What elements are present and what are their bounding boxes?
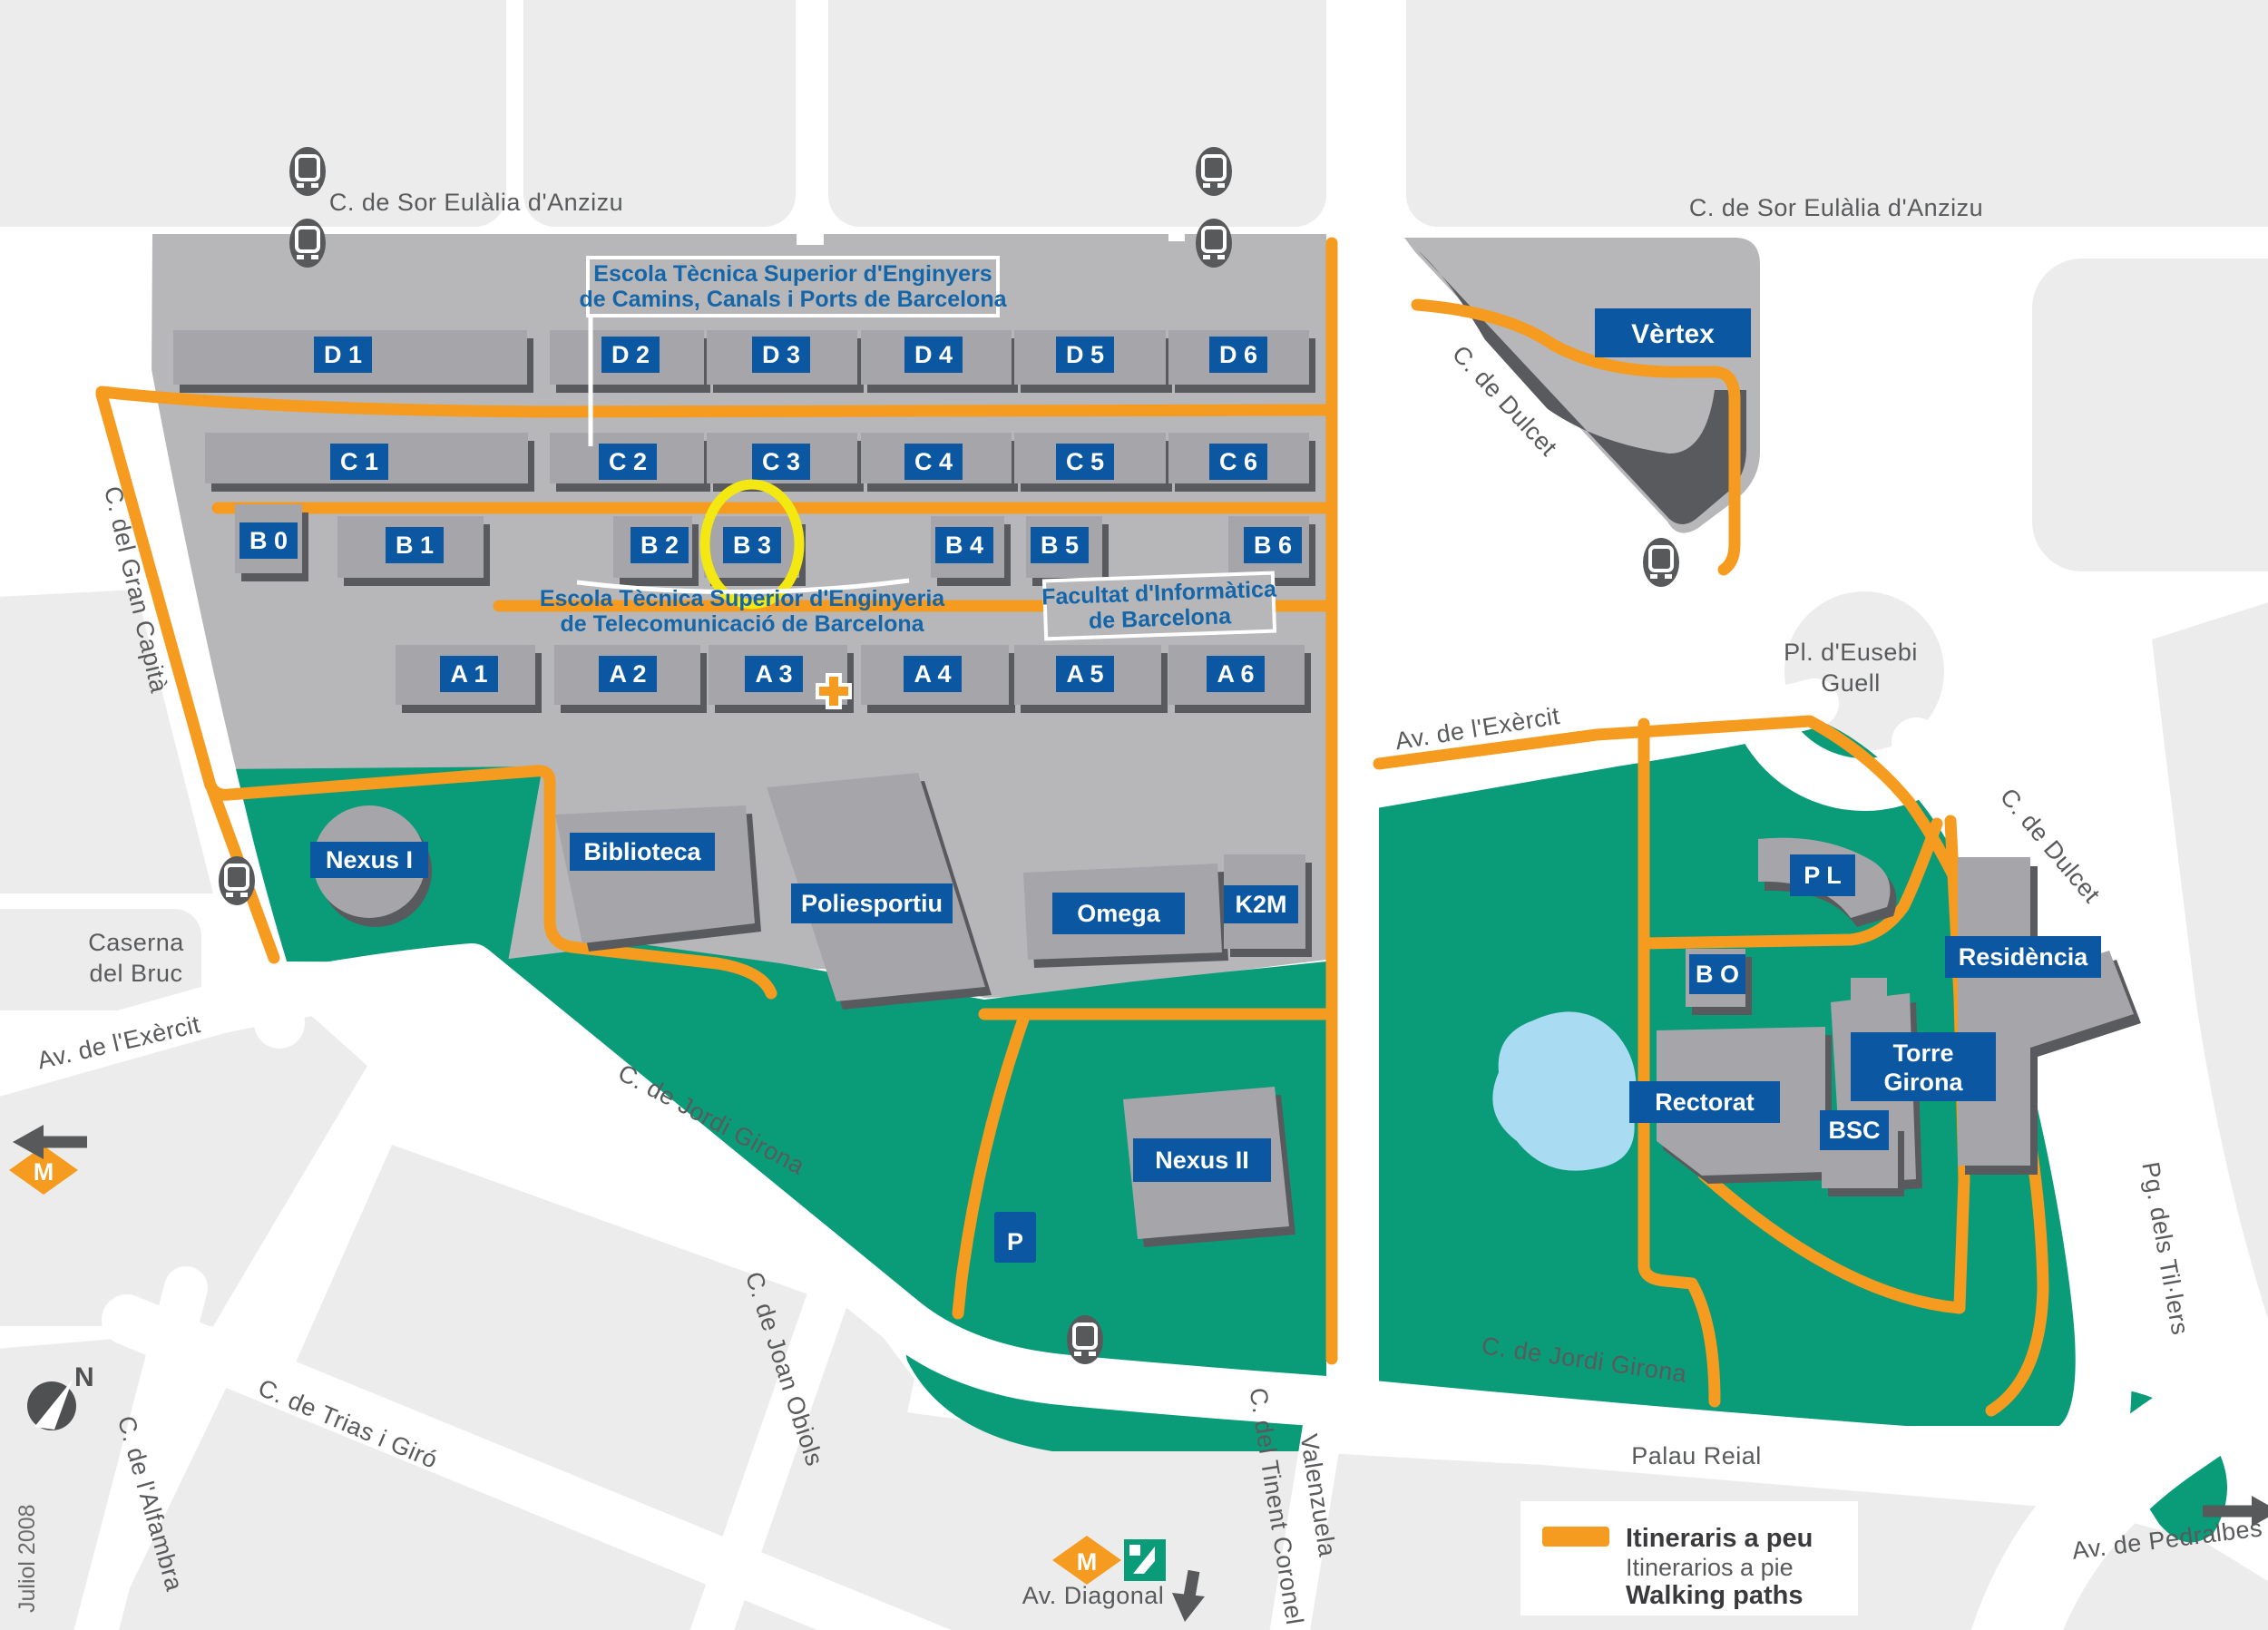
chip-b6[interactable]: B 6 [1244, 527, 1302, 563]
chip-a6[interactable]: A 6 [1207, 656, 1265, 692]
svg-text:C 2: C 2 [609, 448, 647, 475]
campus-top-notch-1 [797, 227, 824, 245]
place-label-eusebi-1: Pl. d'Eusebi [1784, 639, 1918, 666]
camins-label: Escola Tècnica Superior d'Enginyers de C… [580, 258, 1008, 316]
place-label-caserna-1: Caserna [88, 929, 184, 956]
svg-text:D 5: D 5 [1066, 341, 1104, 368]
chip-residencia[interactable]: Residència [1945, 936, 2101, 978]
svg-text:Rectorat: Rectorat [1655, 1088, 1755, 1116]
chip-b2[interactable]: B 2 [631, 527, 689, 563]
svg-text:B 6: B 6 [1254, 532, 1292, 559]
bus-stop-icon[interactable] [1067, 1315, 1103, 1364]
svg-text:M: M [34, 1158, 54, 1186]
svg-text:B O: B O [1696, 961, 1739, 988]
street-label-tillers: Pg. dels Til·lers [2136, 1160, 2194, 1337]
svg-text:D 6: D 6 [1219, 341, 1257, 368]
svg-text:A 2: A 2 [609, 660, 646, 688]
chip-poliesportiu[interactable]: Poliesportiu [791, 883, 953, 923]
chip-k2m[interactable]: K2M [1224, 885, 1298, 923]
north-label: N [74, 1362, 94, 1392]
svg-text:Biblioteca: Biblioteca [583, 838, 701, 865]
svg-text:Escola Tècnica Superior d'Engi: Escola Tècnica Superior d'Enginyers [593, 261, 992, 287]
place-label-eusebi-2: Guell [1821, 669, 1881, 697]
street-label-sor-eulalia-right: C. de Sor Eulàlia d'Anzizu [1689, 194, 1983, 221]
svg-text:A 1: A 1 [450, 660, 487, 688]
svg-text:A 3: A 3 [755, 660, 792, 688]
building-biblioteca [555, 805, 761, 952]
svg-text:M: M [1077, 1548, 1098, 1576]
chip-d6[interactable]: D 6 [1209, 337, 1267, 373]
telecom-label: Escola Tècnica Superior d'Enginyeria de … [540, 586, 945, 637]
campus-map: D 1 D 2 D 3 D 4 D 5 D 6 C 1 C 2 C 3 C 4 … [0, 0, 2268, 1630]
svg-text:Vèrtex: Vèrtex [1631, 319, 1715, 349]
svg-text:A 6: A 6 [1217, 660, 1254, 688]
place-label-palau: Palau Reial [1631, 1442, 1762, 1469]
legend-path-swatch [1542, 1527, 1609, 1547]
chip-c3[interactable]: C 3 [752, 444, 810, 480]
chip-d2[interactable]: D 2 [601, 337, 660, 373]
chip-b3[interactable]: B 3 [723, 527, 781, 563]
chip-d4[interactable]: D 4 [904, 337, 963, 373]
chip-d1[interactable]: D 1 [314, 337, 372, 373]
chip-a1[interactable]: A 1 [440, 656, 498, 692]
chip-biblioteca[interactable]: Biblioteca [570, 833, 715, 871]
svg-text:Escola Tècnica Superior d'Engi: Escola Tècnica Superior d'Enginyeria [540, 586, 945, 611]
campus-top-notch-2 [1168, 229, 1185, 241]
chip-c5[interactable]: C 5 [1056, 444, 1114, 480]
chip-bsc[interactable]: BSC [1820, 1110, 1889, 1150]
chip-nexus1[interactable]: Nexus I [310, 842, 428, 878]
bus-stop-icon[interactable] [289, 147, 326, 196]
svg-text:D 3: D 3 [762, 341, 800, 368]
chip-a2[interactable]: A 2 [599, 656, 657, 692]
chip-d3[interactable]: D 3 [752, 337, 810, 373]
svg-text:de Telecomunicació de Barcelon: de Telecomunicació de Barcelona [560, 611, 924, 637]
chip-c1[interactable]: C 1 [330, 444, 388, 480]
fib-label: Facultat d'Informàtica de Barcelona [1041, 572, 1279, 639]
chip-torre-girona[interactable]: TorreGirona [1851, 1032, 1996, 1101]
chip-b4[interactable]: B 4 [935, 527, 993, 563]
chip-d5[interactable]: D 5 [1056, 337, 1114, 373]
chip-bo[interactable]: B O [1689, 954, 1745, 994]
svg-text:C 1: C 1 [340, 448, 378, 475]
bus-stop-icon[interactable] [289, 219, 326, 268]
legend: Itineraris a peu Itinerarios a pie Walki… [1520, 1501, 1858, 1615]
svg-text:B 5: B 5 [1041, 532, 1079, 559]
svg-text:Nexus II: Nexus II [1155, 1147, 1249, 1174]
svg-text:P L: P L [1804, 862, 1842, 889]
tram-icon[interactable] [1124, 1539, 1166, 1581]
map-date: Juliol 2008 [15, 1504, 40, 1613]
legend-line3: Walking paths [1626, 1581, 1804, 1610]
svg-text:A 4: A 4 [914, 660, 951, 688]
street-label-diagonal: Av. Diagonal [1022, 1582, 1165, 1609]
svg-text:de Barcelona: de Barcelona [1089, 603, 1233, 634]
chip-b0[interactable]: B 0 [240, 522, 298, 559]
street-label-sor-eulalia-left: C. de Sor Eulàlia d'Anzizu [329, 189, 623, 216]
legend-line1: Itineraris a peu [1626, 1524, 1813, 1553]
bus-stop-icon[interactable] [1196, 219, 1232, 268]
svg-text:P: P [1007, 1228, 1023, 1255]
svg-text:C 3: C 3 [762, 448, 800, 475]
svg-text:Poliesportiu: Poliesportiu [801, 890, 943, 917]
svg-text:Nexus I: Nexus I [326, 846, 413, 874]
place-label-caserna-2: del Bruc [89, 960, 182, 987]
svg-text:B 3: B 3 [733, 532, 771, 559]
svg-text:Torre: Torre [1892, 1039, 1953, 1067]
legend-line2: Itinerarios a pie [1626, 1554, 1794, 1581]
chip-c4[interactable]: C 4 [904, 444, 963, 480]
chip-nexus2[interactable]: Nexus II [1133, 1138, 1271, 1182]
svg-text:D 4: D 4 [914, 341, 953, 368]
bus-stop-icon[interactable] [1196, 147, 1232, 196]
block-top-c [828, 0, 1326, 227]
svg-text:Residència: Residència [1959, 943, 2089, 971]
svg-text:B 1: B 1 [396, 532, 434, 559]
chip-omega[interactable]: Omega [1052, 893, 1185, 934]
svg-text:Omega: Omega [1077, 900, 1161, 927]
chip-c2[interactable]: C 2 [599, 444, 657, 480]
chip-a3[interactable]: A 3 [745, 656, 803, 692]
chip-a4[interactable]: A 4 [904, 656, 962, 692]
svg-text:D 2: D 2 [611, 341, 650, 368]
svg-text:Girona: Girona [1883, 1069, 1963, 1096]
svg-text:C 4: C 4 [914, 448, 953, 475]
svg-text:D 1: D 1 [324, 341, 362, 368]
svg-text:B 2: B 2 [640, 532, 679, 559]
svg-text:C 6: C 6 [1219, 448, 1257, 475]
chip-b1[interactable]: B 1 [386, 527, 444, 563]
chip-b5[interactable]: B 5 [1031, 527, 1089, 563]
chip-c6[interactable]: C 6 [1209, 444, 1267, 480]
block-roundabout-ne [2032, 259, 2268, 571]
chip-rectorat[interactable]: Rectorat [1629, 1081, 1780, 1123]
chip-pl[interactable]: P L [1790, 854, 1855, 896]
bus-stop-icon[interactable] [219, 856, 255, 905]
svg-text:BSC: BSC [1828, 1117, 1880, 1144]
chip-a5[interactable]: A 5 [1056, 656, 1114, 692]
svg-text:B 4: B 4 [945, 532, 983, 559]
svg-text:A 5: A 5 [1066, 660, 1103, 688]
bus-stop-icon[interactable] [1643, 538, 1679, 587]
svg-text:K2M: K2M [1235, 891, 1286, 918]
chip-vertex[interactable]: Vèrtex [1595, 308, 1751, 357]
svg-text:C 5: C 5 [1066, 448, 1104, 475]
svg-text:de Camins, Canals i Ports de B: de Camins, Canals i Ports de Barcelona [580, 287, 1008, 312]
parking-icon[interactable]: P [994, 1212, 1036, 1263]
block-top-right [1406, 0, 2268, 227]
svg-text:B 0: B 0 [249, 527, 288, 554]
